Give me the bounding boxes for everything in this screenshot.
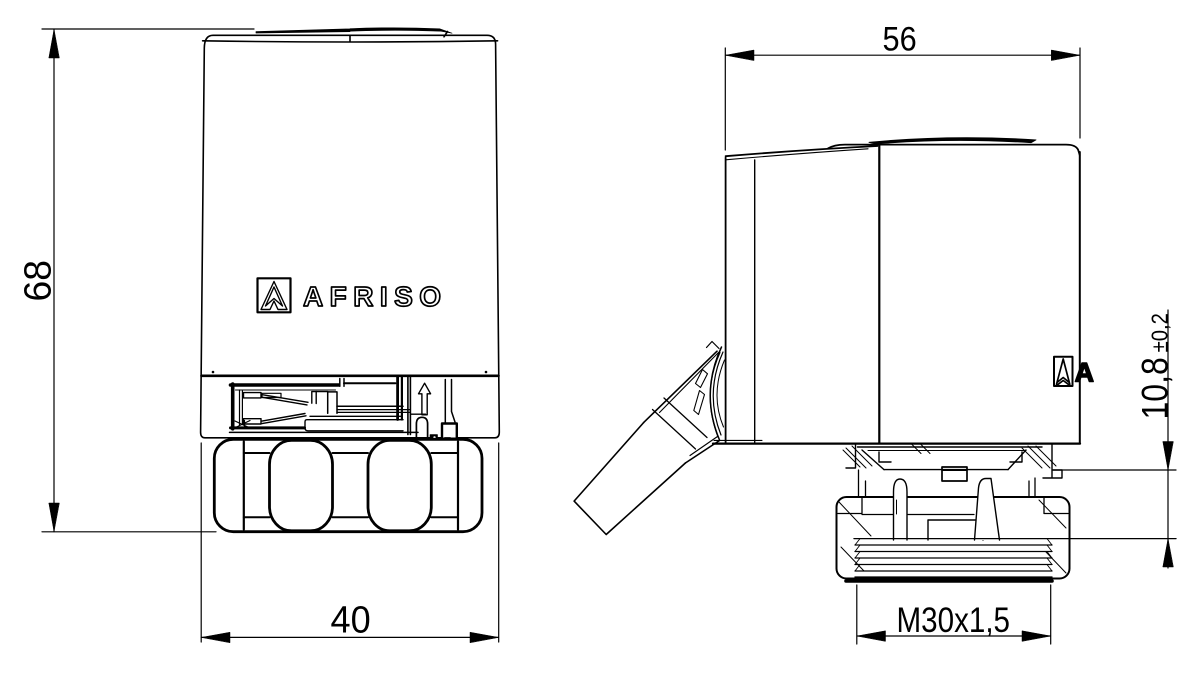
svg-text:56: 56: [883, 19, 917, 58]
svg-text:68: 68: [16, 260, 58, 301]
svg-text:M30x1,5: M30x1,5: [897, 599, 1011, 639]
svg-text:10,8: 10,8: [1136, 357, 1176, 419]
svg-text:40: 40: [331, 597, 371, 640]
svg-text:A: A: [1075, 358, 1094, 388]
svg-text:±0,2: ±0,2: [1146, 313, 1172, 352]
svg-text:AFRISO: AFRISO: [303, 281, 441, 312]
